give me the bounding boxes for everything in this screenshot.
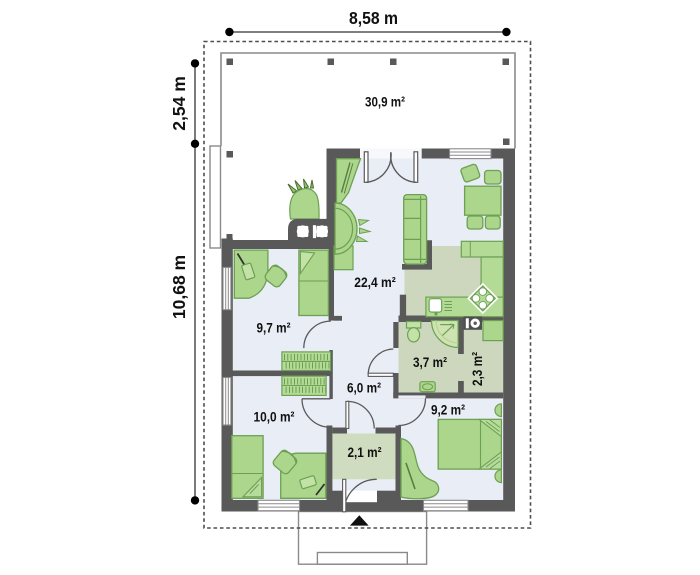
svg-text:3,7 m²: 3,7 m² (413, 355, 447, 371)
svg-text:6,0 m²: 6,0 m² (347, 381, 381, 397)
svg-text:10,0 m²: 10,0 m² (254, 410, 295, 426)
svg-text:2,3 m²: 2,3 m² (470, 352, 486, 386)
svg-text:2,1 m²: 2,1 m² (348, 445, 382, 461)
svg-text:8,58 m: 8,58 m (349, 8, 398, 28)
svg-text:10,68 m: 10,68 m (169, 255, 189, 319)
svg-text:22,4 m²: 22,4 m² (354, 275, 396, 291)
svg-text:2,54 m: 2,54 m (169, 76, 189, 130)
svg-text:30,9 m²: 30,9 m² (365, 95, 405, 111)
svg-text:9,7 m²: 9,7 m² (257, 321, 291, 337)
svg-text:9,2 m²: 9,2 m² (431, 403, 465, 419)
